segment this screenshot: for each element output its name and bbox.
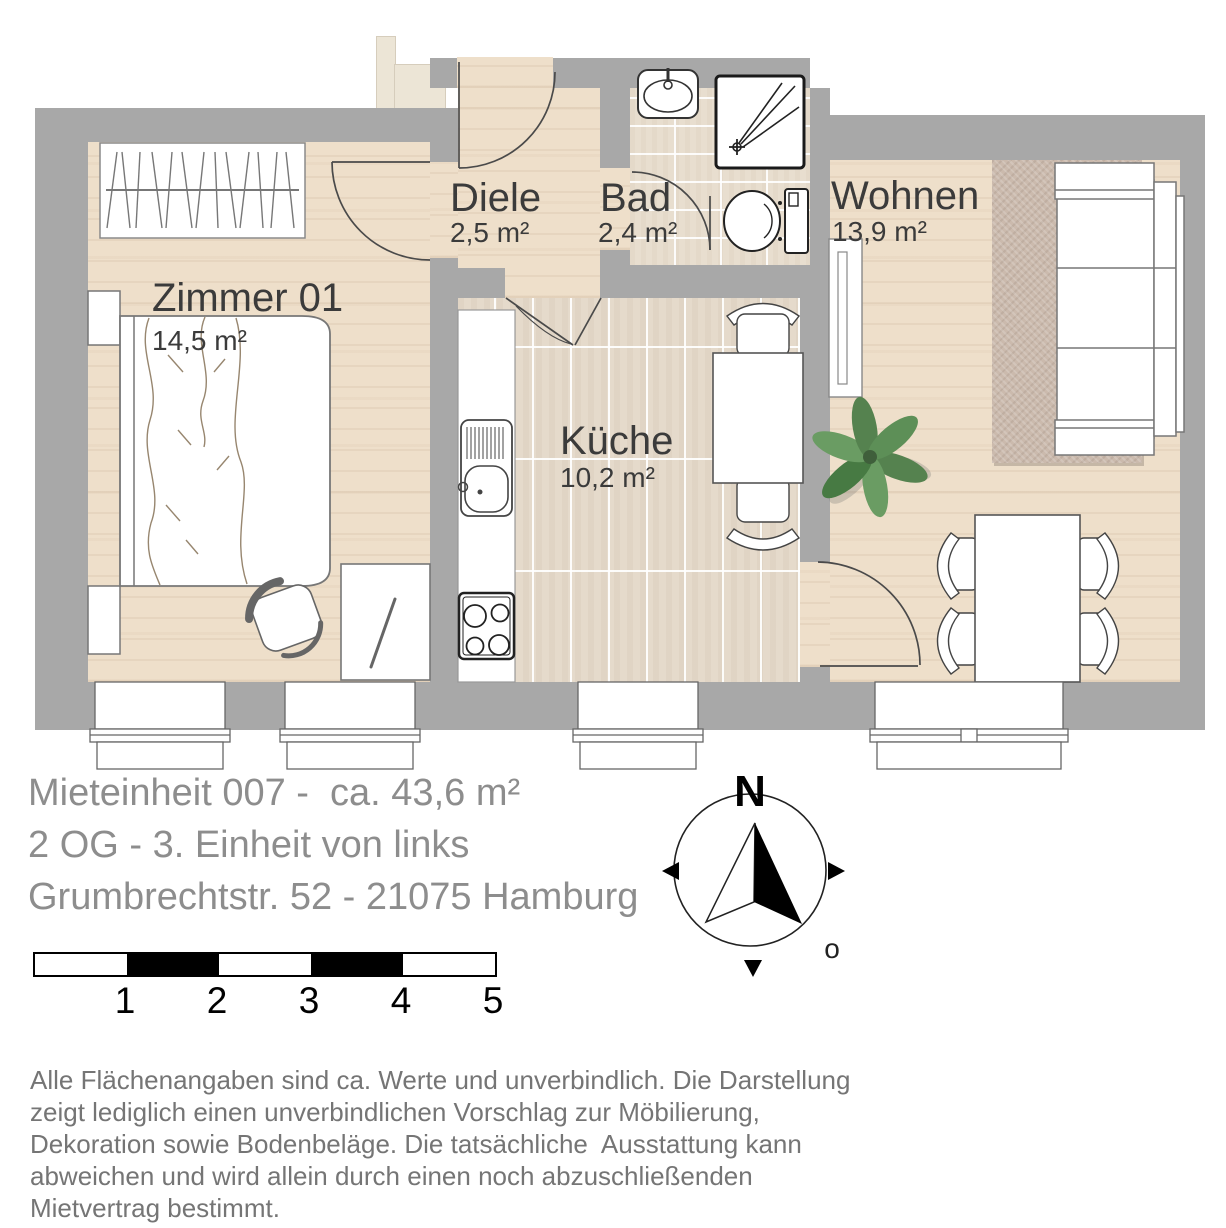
- room-area-zimmer01: 14,5 m²: [152, 325, 247, 357]
- compass-north-label: N: [734, 767, 766, 816]
- room-label-diele: Diele: [450, 176, 541, 221]
- disclaimer-line: Dekoration sowie Bodenbeläge. Die tatsäc…: [30, 1128, 850, 1160]
- scale-label-1: 1: [115, 980, 136, 1022]
- title-line-3: Grumbrechtstr. 52 - 21075 Hamburg: [28, 876, 638, 919]
- kitchen-chair: [727, 478, 799, 550]
- compass-west-arrow: [662, 862, 679, 880]
- shower: [716, 76, 804, 168]
- disclaimer-line: Alle Flächenangaben sind ca. Werte und u…: [30, 1064, 850, 1096]
- compass-east-label: o: [824, 933, 840, 964]
- desk: [341, 564, 430, 680]
- dining-table: [975, 515, 1080, 682]
- scale-label-5: 5: [483, 980, 504, 1022]
- kitchen-chair: [727, 304, 799, 357]
- door-kueche: [506, 298, 601, 345]
- room-label-bad: Bad: [600, 176, 671, 221]
- bathroom-sink: [638, 68, 698, 118]
- stove: [459, 593, 514, 659]
- compass-east-arrow: [828, 862, 845, 880]
- scale-label-4: 4: [391, 980, 412, 1022]
- compass-needle-fill: [754, 823, 802, 924]
- title-line-1: Mieteinheit 007 - ca. 43,6 m²: [28, 772, 520, 815]
- room-area-kueche: 10,2 m²: [560, 462, 655, 494]
- nightstand: [88, 586, 120, 654]
- floorplan-page: Zimmer 01 14,5 m² Diele 2,5 m² Bad 2,4 m…: [0, 0, 1226, 1228]
- disclaimer-line: zeigt lediglich einen unverbindlichen Vo…: [30, 1096, 850, 1128]
- window: [870, 682, 1068, 769]
- room-area-diele: 2,5 m²: [450, 217, 529, 249]
- scale-segment: [127, 954, 219, 975]
- toilet: [724, 189, 808, 253]
- scale-segment: [219, 954, 311, 975]
- plant: [809, 395, 934, 519]
- disclaimer-line: abweichen und wird allein durch einen no…: [30, 1160, 850, 1192]
- window: [90, 682, 230, 769]
- entrance-door: [459, 62, 555, 168]
- sofa: [1055, 163, 1184, 455]
- scale-segment: [311, 954, 403, 975]
- door-wohnen: [818, 562, 920, 666]
- room-label-kueche: Küche: [560, 419, 673, 464]
- door-zimmer01: [332, 162, 430, 260]
- nightstand: [88, 291, 120, 345]
- title-line-2: 2 OG - 3. Einheit von links: [28, 824, 469, 867]
- compass-rose-icon: N o: [655, 740, 870, 990]
- scale-segment: [403, 954, 495, 975]
- disclaimer-text: Alle Flächenangaben sind ca. Werte und u…: [30, 1064, 850, 1224]
- compass-needle-outline: [706, 823, 755, 922]
- radiator: [829, 239, 862, 397]
- kitchen-sink: [459, 420, 513, 516]
- scale-label-2: 2: [207, 980, 228, 1022]
- room-area-bad: 2,4 m²: [598, 217, 677, 249]
- kitchen-table: [713, 353, 803, 483]
- scale-label-3: 3: [299, 980, 320, 1022]
- room-label-wohnen: Wohnen: [831, 174, 979, 219]
- scale-bar: [33, 952, 497, 977]
- compass-south-arrow: [744, 960, 762, 977]
- window: [280, 682, 420, 769]
- room-label-zimmer01: Zimmer 01: [152, 276, 343, 321]
- scale-segment: [35, 954, 127, 975]
- room-area-wohnen: 13,9 m²: [832, 216, 927, 248]
- disclaimer-line: Mietvertrag bestimmt.: [30, 1192, 850, 1224]
- wardrobe-rail: [100, 143, 305, 238]
